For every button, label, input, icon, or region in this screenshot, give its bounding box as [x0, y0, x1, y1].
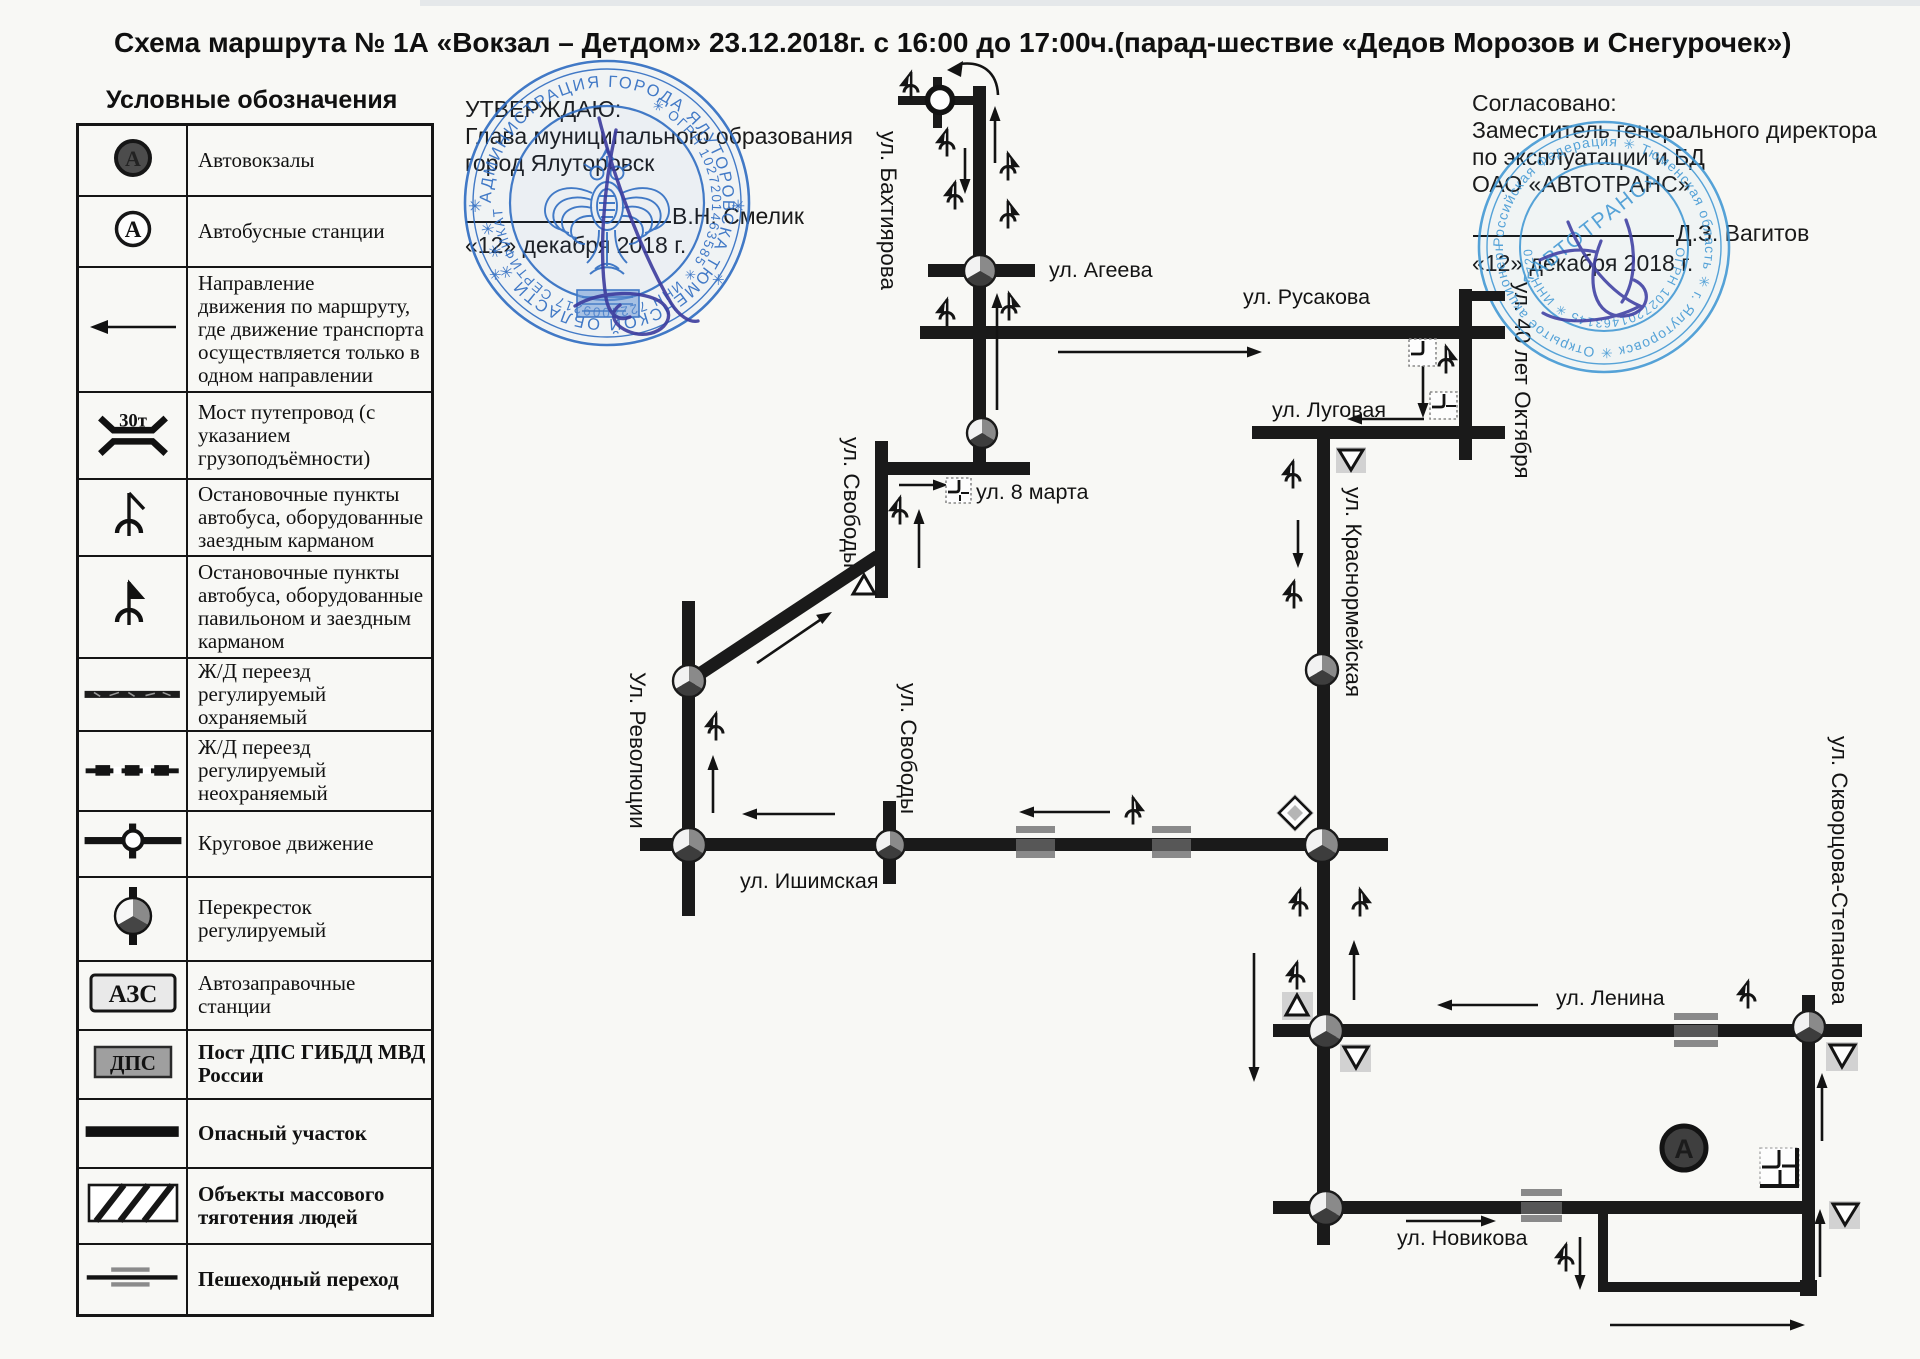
svg-text:✳: ✳ [731, 197, 745, 216]
svg-text:✳: ✳ [468, 197, 482, 216]
svg-text:✳: ✳ [489, 267, 502, 284]
svg-text:✳: ✳ [712, 272, 725, 289]
svg-text:А: А [1674, 1134, 1694, 1164]
svg-text:ОГРН 1027201463145 ✳ ИНН 72070: ОГРН 1027201463145 ✳ ИНН 7207002712 ✳ [0, 0, 1687, 330]
